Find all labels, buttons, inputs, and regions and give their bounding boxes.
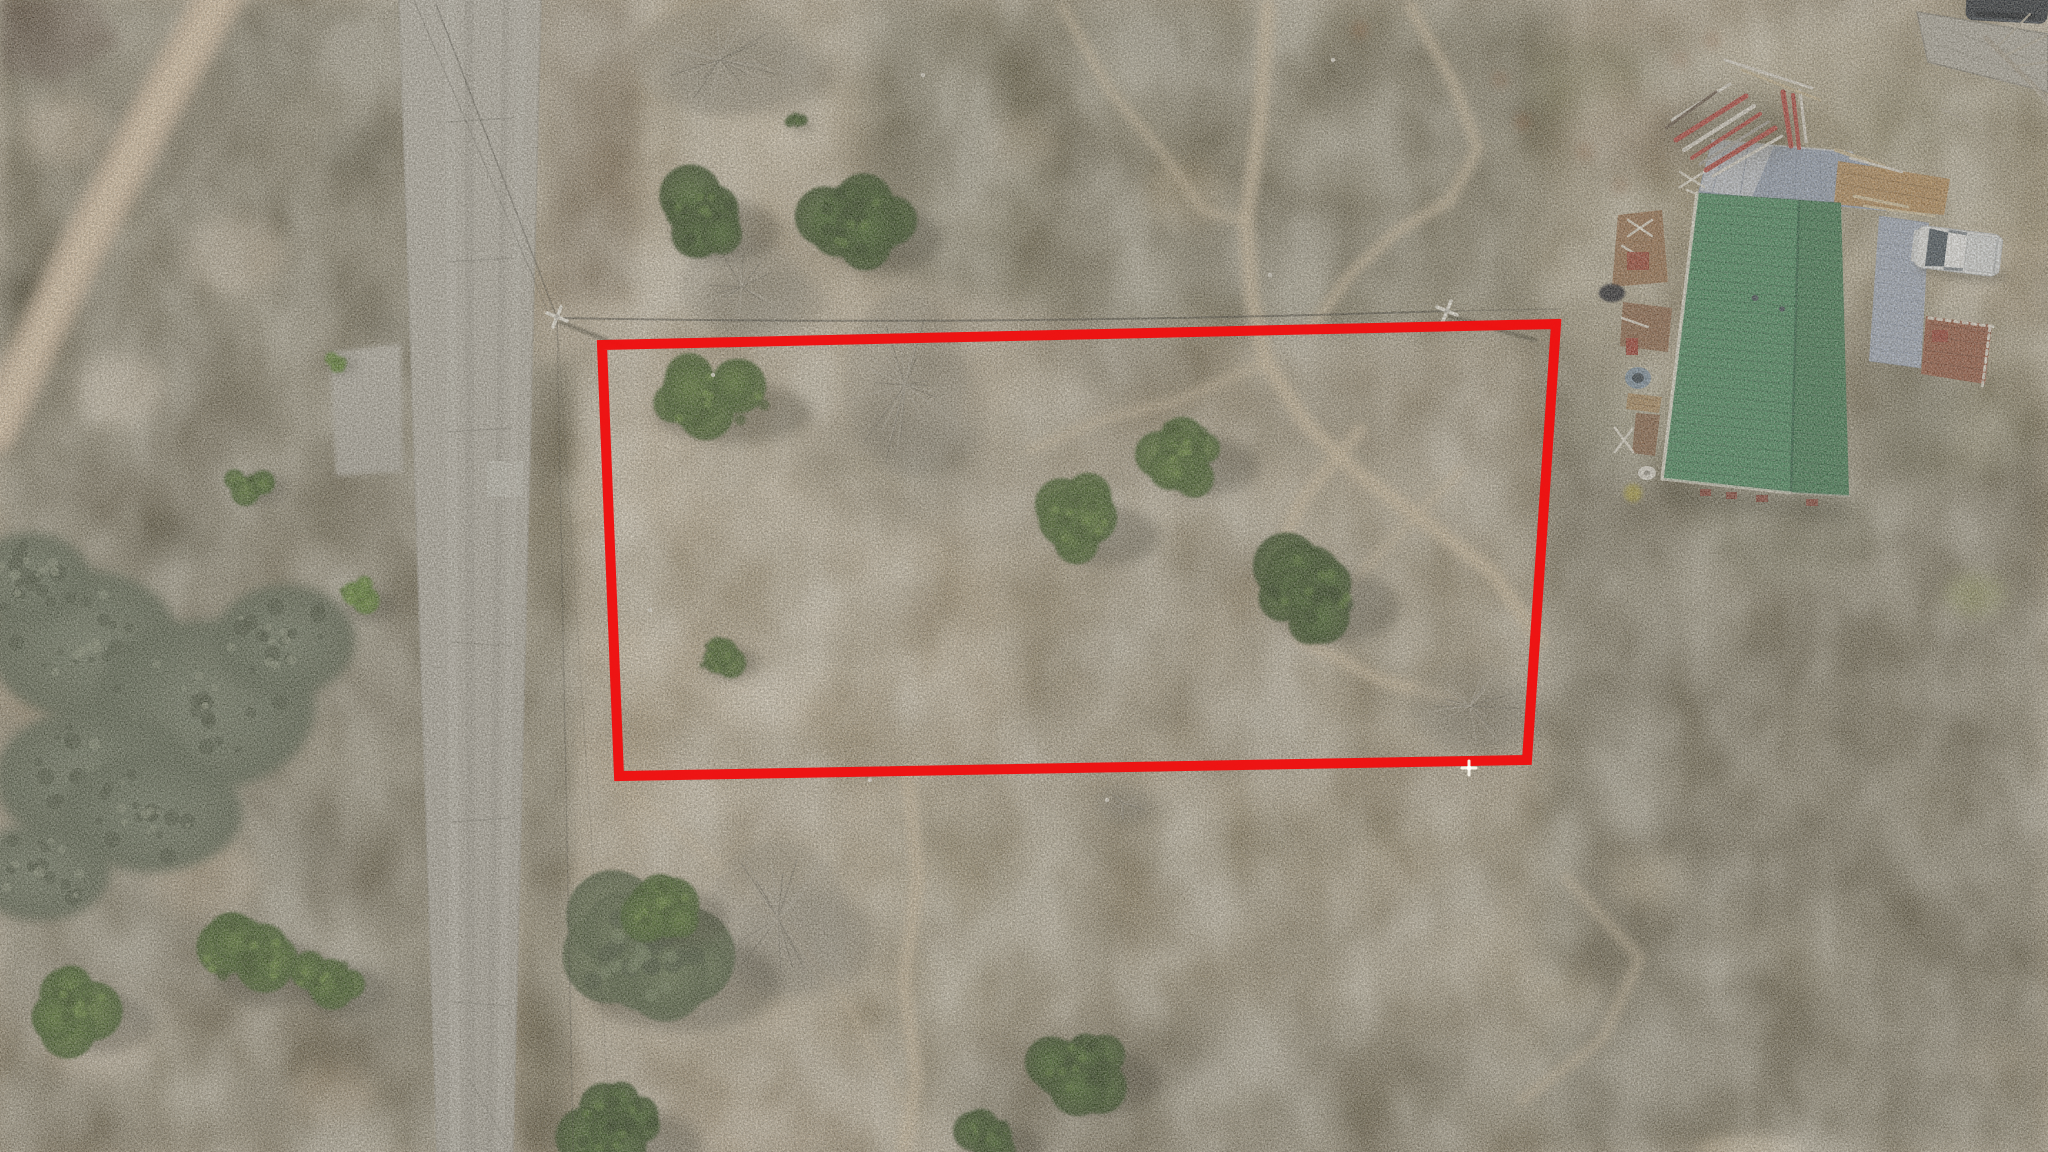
photo-grain — [0, 0, 2048, 1152]
aerial-photo — [0, 0, 2048, 1152]
aerial-photo-canvas — [0, 0, 2048, 1152]
grain-light — [0, 0, 2048, 1152]
